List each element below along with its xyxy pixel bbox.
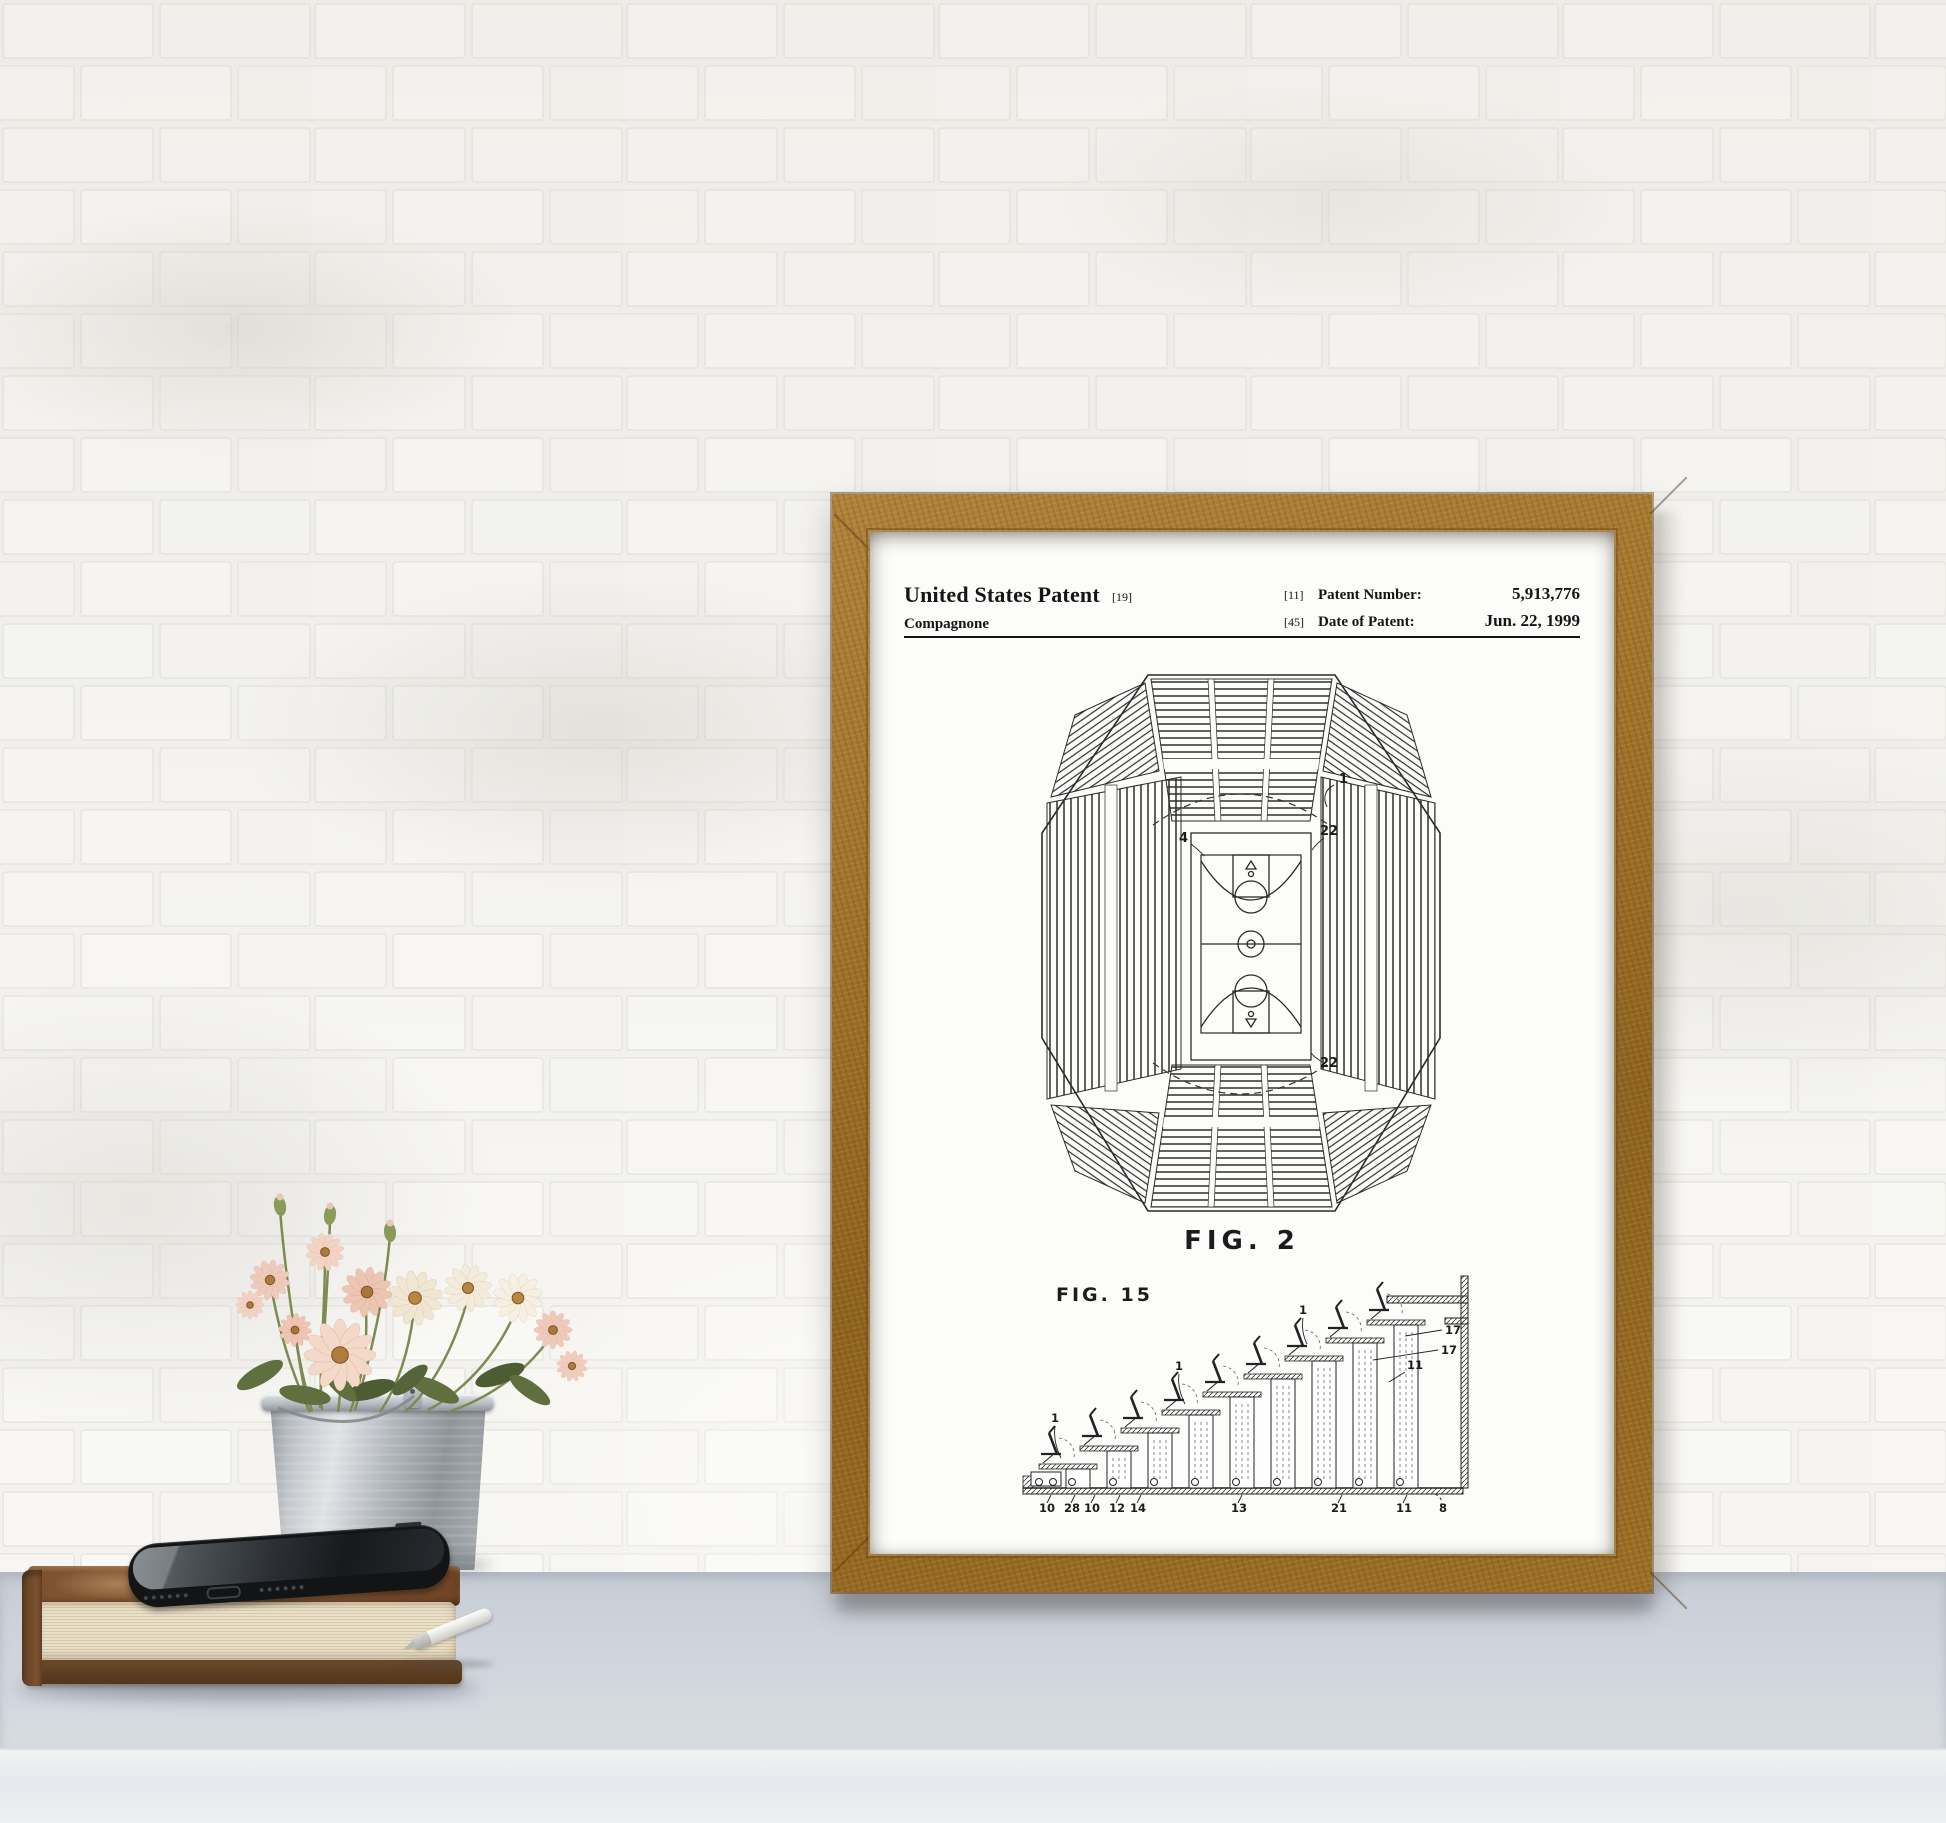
flower-leaves <box>233 1354 554 1410</box>
fig2-leader-lines <box>1191 785 1334 1063</box>
fig2-arena-drawing: 1 22 4 22 <box>1041 673 1441 1213</box>
fig15-svg: 1 1 1 17 17 11 10 28 10 12 14 13 21 <box>1015 1270 1475 1520</box>
ref-11-bottom: 11 <box>1396 1501 1412 1515</box>
fig15-bottom-labels: 10 28 10 12 14 13 21 11 8 <box>1039 1501 1447 1515</box>
seat-ref-1b: 1 <box>1175 1359 1183 1373</box>
speaker-dots-left <box>144 1593 188 1600</box>
picture-frame: United States Patent [19] Compagnone [11… <box>832 494 1652 1592</box>
ref-11-right: 11 <box>1407 1358 1423 1372</box>
ref-label-4: 4 <box>1179 831 1188 846</box>
book-spine <box>22 1570 42 1686</box>
ref-10a: 10 <box>1039 1501 1055 1515</box>
patent-date-label: Date of Patent: <box>1318 614 1485 631</box>
fig15-caption: FIG. 15 <box>1056 1284 1153 1306</box>
flower-bouquet <box>200 1140 600 1440</box>
fig2-caption: FIG. 2 <box>870 1226 1614 1256</box>
patent-header-right: [11] Patent Number: 5,913,776 [45] Date … <box>1284 584 1580 638</box>
patent-number-label: Patent Number: <box>1318 587 1512 604</box>
patent-date-row: [45] Date of Patent: Jun. 22, 1999 <box>1284 611 1580 631</box>
ref-13: 13 <box>1231 1501 1247 1515</box>
table-front-edge <box>0 1748 1946 1823</box>
patent-date-code: [45] <box>1284 615 1318 630</box>
ref-10b: 10 <box>1084 1501 1100 1515</box>
phone-side-button <box>395 1522 421 1528</box>
ref-label-22-top: 22 <box>1320 824 1338 839</box>
frame-miter-top-left <box>833 513 871 551</box>
book-cover-bottom <box>26 1660 462 1684</box>
ref-17a: 17 <box>1445 1323 1461 1337</box>
speaker-dots-right <box>259 1585 303 1592</box>
fig15-seat-labels: 1 1 1 <box>1051 1303 1307 1425</box>
patent-date-value: Jun. 22, 1999 <box>1485 611 1580 631</box>
header-rule <box>904 636 1580 638</box>
patent-number-value: 5,913,776 <box>1512 584 1580 604</box>
ref-14: 14 <box>1130 1501 1146 1515</box>
seat-ref-1a: 1 <box>1299 1303 1307 1317</box>
pen-shadow <box>402 1660 494 1668</box>
charging-port <box>206 1585 241 1599</box>
ref-label-22-bottom: 22 <box>1320 1056 1338 1071</box>
ref-21: 21 <box>1331 1501 1347 1515</box>
ref-label-1: 1 <box>1339 772 1348 787</box>
ref-12: 12 <box>1109 1501 1125 1515</box>
patent-inventor: Compagnone <box>904 616 989 633</box>
patent-number-code: [11] <box>1284 588 1318 603</box>
frame-miter-bottom-left <box>833 1535 871 1573</box>
scene: United States Patent [19] Compagnone [11… <box>0 0 1946 1823</box>
patent-number-row: [11] Patent Number: 5,913,776 <box>1284 584 1580 604</box>
patent-title: United States Patent <box>904 582 1100 608</box>
flower-buds <box>272 1194 397 1243</box>
basketball-court <box>1191 833 1311 1060</box>
fig15-units <box>1039 1282 1425 1488</box>
patent-title-code: [19] <box>1112 590 1132 605</box>
arena-seating-sections <box>1047 679 1435 1207</box>
ref-28: 28 <box>1064 1501 1080 1515</box>
ref-17b: 17 <box>1441 1343 1457 1357</box>
ref-8: 8 <box>1439 1501 1447 1515</box>
seat-ref-1c: 1 <box>1051 1411 1059 1425</box>
frame-wall-shadow <box>1652 512 1682 1594</box>
book-pages <box>36 1602 456 1664</box>
poster-paper: United States Patent [19] Compagnone [11… <box>870 532 1614 1554</box>
